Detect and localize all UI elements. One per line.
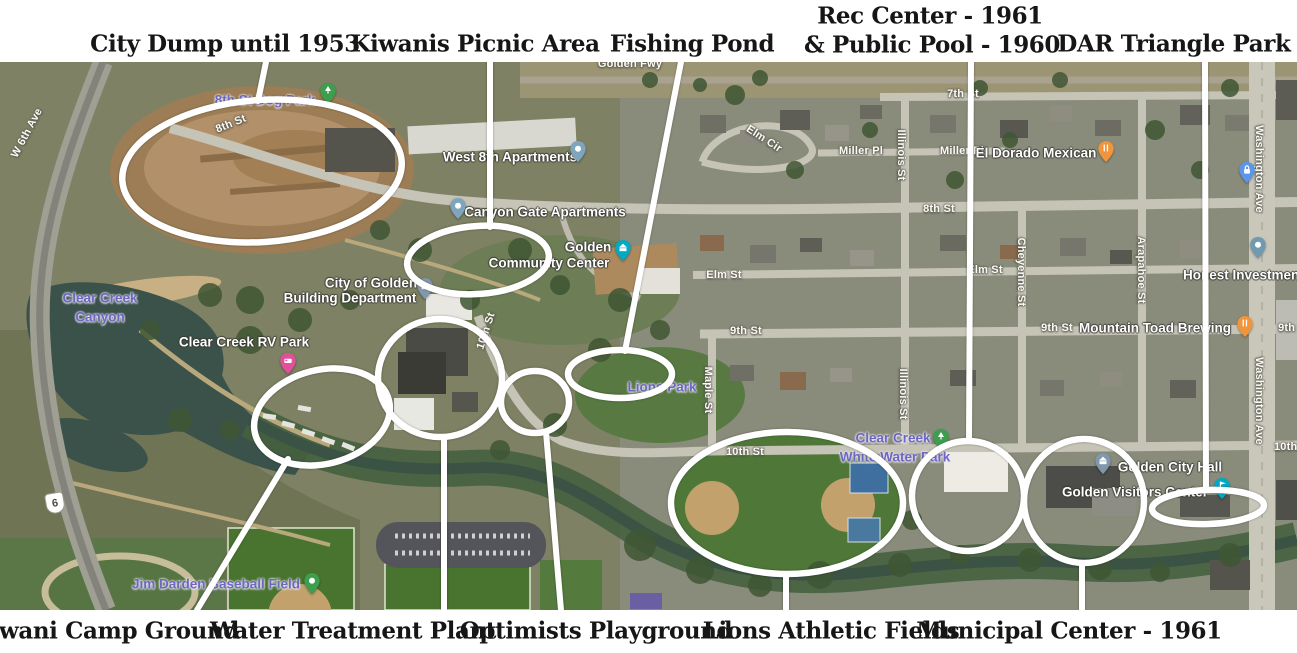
street-label-elm-st-2: Elm St [967,264,1002,276]
street-label-7th-st: 7th St [947,88,979,100]
poi-label-clear-creek-rv-park[interactable]: Clear Creek RV Park [179,335,309,350]
poi-label-el-dorado-mexican[interactable]: El Dorado Mexican [976,146,1097,161]
park-label-jim-darden-baseball-field[interactable]: Jim Darden Baseball Field [132,577,300,592]
visitors-center-pin[interactable] [1214,477,1231,500]
map-pin-icon [1250,237,1265,258]
restaurant-pin-icon [1237,316,1252,337]
street-label-8th-st: 8th St [923,203,955,215]
map-pin-icon [450,198,465,219]
tree-pin-icon [933,429,948,450]
annotated-satellite-map: W 6th Ave Golden Fwy 8th St 8th St 7th S… [0,0,1297,653]
flag-pin-icon [1214,478,1229,499]
map-label-layer: W 6th Ave Golden Fwy 8th St 8th St 7th S… [0,0,1297,653]
street-label-w-6th-ave: W 6th Ave [9,106,45,159]
west-8th-apartments-pin[interactable] [570,140,587,163]
park-label-8th-st-dog-park[interactable]: 8th St Dog Park [215,93,316,108]
street-label-10th-st-diag: 10th St [474,311,497,351]
poi-label-community-center-line1[interactable]: Golden [565,240,612,255]
street-label-elm-st: Elm St [706,269,741,281]
poi-label-golden-city-hall[interactable]: Golden City Hall [1118,460,1222,475]
annotation-rec-center-line2: & Public Pool - 1960 [804,32,1060,59]
park-label-clear-creek-canyon-line1[interactable]: Clear Creek [62,291,137,306]
street-label-10th-st-clipped: 10th St [1274,441,1297,453]
street-label-miller-pl: Miller Pl [839,145,883,157]
honest-investment-pin[interactable] [1250,236,1267,259]
golden-city-hall-pin[interactable] [1095,452,1112,475]
park-label-lions-park[interactable]: Lions Park [627,380,696,395]
rv-pin-icon [280,353,295,374]
park-label-white-water-park-line2[interactable]: White Water Park [840,450,951,465]
poi-label-canyon-gate-apartments[interactable]: Canyon Gate Apartments [464,205,626,220]
street-label-washington-ave-2: Washington Ave [1253,357,1265,445]
jim-darden-field-pin[interactable] [304,572,321,595]
civic-building-pin-icon [615,240,630,261]
street-label-9th-st-2: 9th St [1041,322,1073,334]
street-label-8th-st-west: 8th St [214,112,248,135]
street-label-arapahoe-st: Arapahoe St [1135,237,1147,304]
poi-label-community-center-line2[interactable]: Community Center [489,256,610,271]
street-label-9th-st-3: 9th St [1278,322,1297,334]
map-pin-icon [570,141,585,162]
bank-pin-icon [417,278,432,299]
dot-pin-icon [304,573,319,594]
annotation-optimists: Optimists Playground [460,618,732,645]
annotation-dar-triangle: DAR Triangle Park [1057,31,1290,58]
poi-label-mountain-toad-brewing[interactable]: Mountain Toad Brewing [1079,321,1231,336]
dog-park-pin[interactable] [320,82,337,105]
annotation-kiwanis-picnic: Kiwanis Picnic Area [350,31,599,58]
restaurant-pin-icon [1098,141,1113,162]
street-label-9th-st: 9th St [730,325,762,337]
white-water-park-pin[interactable] [933,428,950,451]
bank-pin-icon [1095,453,1110,474]
annotation-fishing-pond: Fishing Pond [610,31,774,58]
street-label-10th-st: 10th St [726,446,764,458]
annotation-rec-center-line1: Rec Center - 1961 [817,3,1043,30]
poi-label-golden-visitors-center[interactable]: Golden Visitors Center [1062,485,1208,500]
annotation-water-treatment: Water Treatment Plant [210,618,496,645]
tree-pin-icon [320,83,335,104]
park-label-white-water-park-line1[interactable]: Clear Creek [855,431,930,446]
community-center-pin[interactable] [615,239,632,262]
street-label-cheyenne-st: Cheyenne St [1015,238,1027,307]
poi-label-building-department-line2[interactable]: Building Department [284,291,417,306]
annotation-municipal-center: Municipal Center - 1961 [916,618,1222,645]
annotation-kiwani-camp: Kiwani Camp Ground [0,618,239,645]
lock-pin[interactable] [1239,161,1256,184]
rv-park-pin[interactable] [280,352,297,375]
us-route-6-shield-icon: 6 [44,491,66,515]
street-label-illinois-st: Illinois St [895,129,907,180]
mountain-toad-brewing-pin[interactable] [1237,315,1254,338]
el-dorado-mexican-pin[interactable] [1098,140,1115,163]
park-label-clear-creek-canyon-line2[interactable]: Canyon [75,310,125,325]
annotation-city-dump: City Dump until 1953 [90,31,360,58]
poi-label-building-department-line1[interactable]: City of Golden [325,276,417,291]
street-label-illinois-st-2: Illinois St [897,368,909,419]
lock-pin-icon [1239,162,1254,183]
poi-label-west-8th-apartments[interactable]: West 8th Apartments [443,150,577,165]
poi-label-honest-investment[interactable]: Honest Investment [1183,268,1297,283]
street-label-elm-cir: Elm Cir [744,123,784,155]
building-department-pin[interactable] [417,277,434,300]
street-label-maple-st: Maple St [702,367,714,414]
canyon-gate-apartments-pin[interactable] [450,197,467,220]
